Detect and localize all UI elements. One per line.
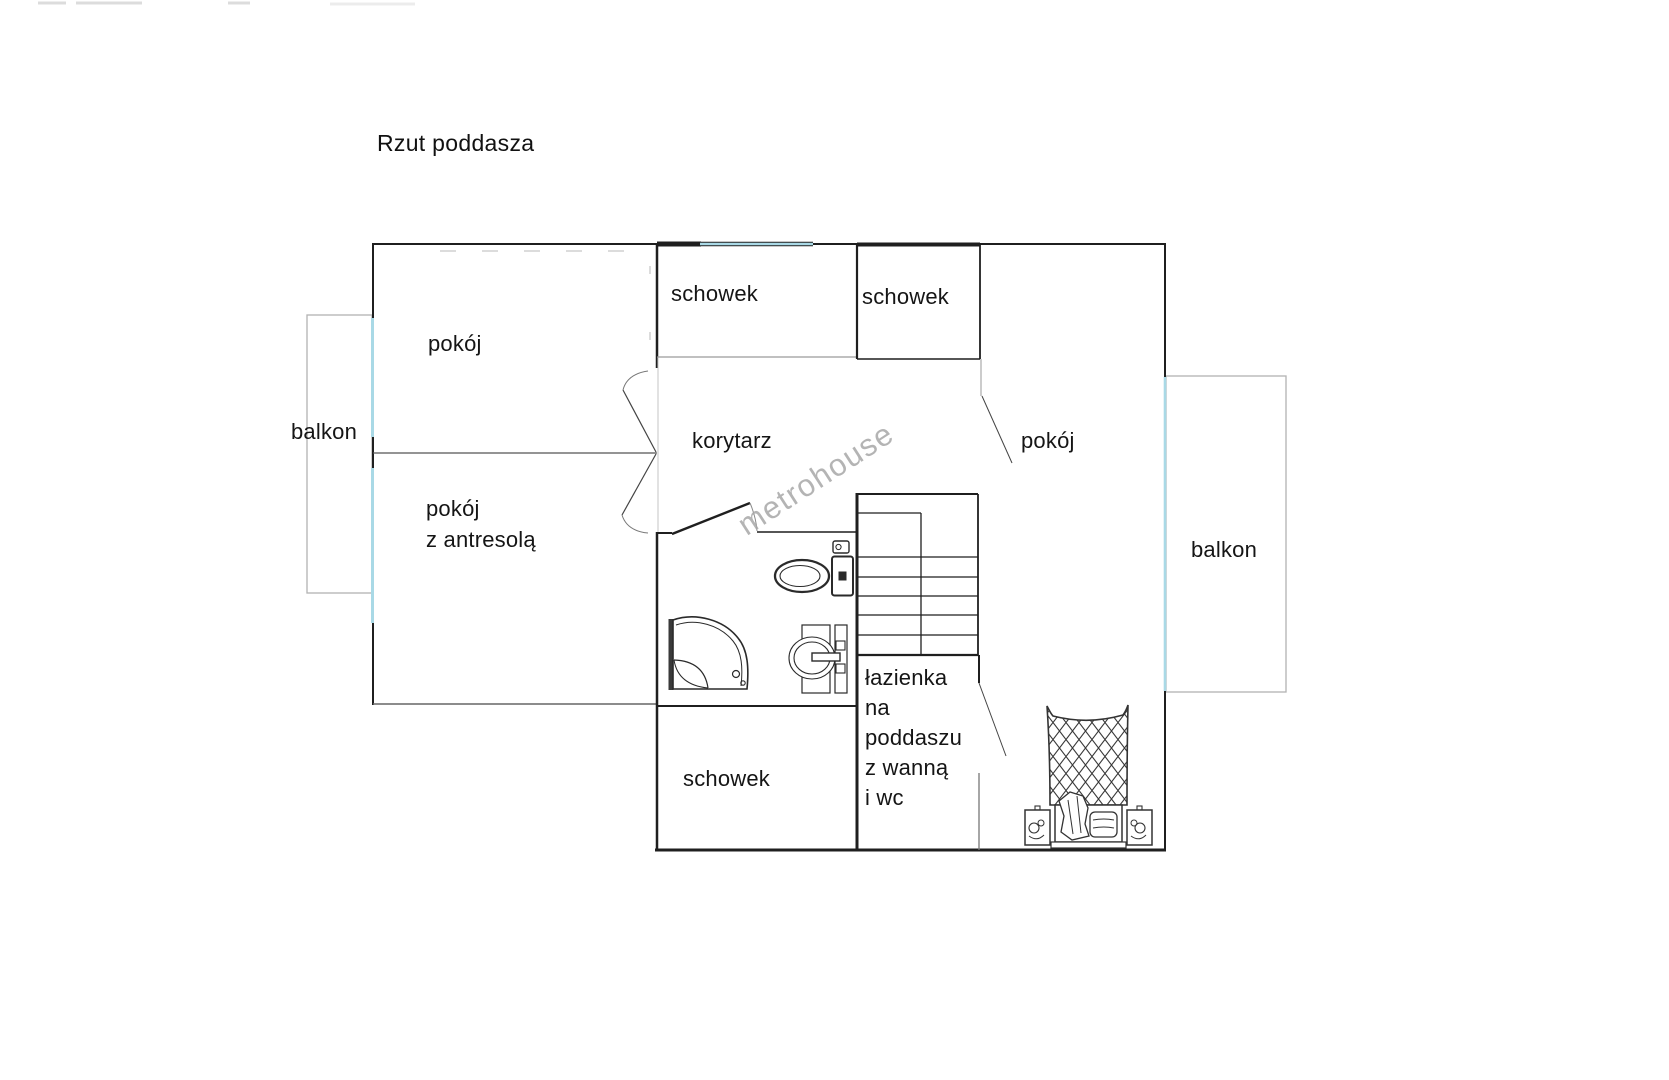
room-label-lazienka-line5: i wc	[865, 785, 904, 810]
sink-icon	[789, 625, 847, 693]
shower-icon	[669, 617, 748, 690]
plan-title: Rzut poddasza	[377, 130, 534, 157]
room-label-lazienka-line1: łazienka	[865, 665, 947, 690]
room-label-korytarz: korytarz	[692, 428, 772, 454]
door-swing-pokoj-left	[623, 371, 656, 452]
stairs-icon	[857, 494, 978, 655]
room-label-pokoj-z-antresola: pokójz antresolą	[426, 493, 536, 555]
balcony-right-outline	[1166, 376, 1286, 692]
room-label-lazienka-line2: na	[865, 695, 890, 720]
door-swing-bedroom-area	[979, 683, 1006, 756]
room-label-lazienka-line4: z wanną	[865, 755, 948, 780]
room-label-lazienka-line3: poddaszu	[865, 725, 962, 750]
nightstand-left-icon	[1025, 806, 1050, 845]
floor-plan-page: Rzut poddasza pokój balkon schowek schow…	[0, 0, 1669, 1080]
room-label-schowek-bottom: schowek	[683, 766, 770, 792]
room-label-balkon-right: balkon	[1191, 537, 1257, 563]
room-label-pokoj-right: pokój	[1021, 428, 1075, 454]
toilet-icon	[775, 541, 853, 596]
floor-plan-drawing	[0, 0, 1669, 1080]
room-label-schowek-top-left: schowek	[671, 281, 758, 307]
door-swing-pokoj-right	[982, 396, 1012, 463]
nightstand-right-icon	[1127, 806, 1152, 845]
room-label-lazienka: łazienkanapoddaszuz wannąi wc	[865, 663, 962, 813]
room-label-schowek-top-right: schowek	[862, 284, 949, 310]
room-label-pokoj-z-antresola-line2: z antresolą	[426, 527, 536, 552]
room-label-pokoj-z-antresola-line1: pokój	[426, 496, 480, 521]
room-label-pokoj-top-left: pokój	[428, 331, 482, 357]
door-swing-antresola	[622, 454, 656, 533]
balcony-left-outline	[307, 315, 372, 593]
double-bed-icon	[1047, 705, 1128, 848]
scan-smudges	[38, 3, 415, 4]
room-label-balkon-left: balkon	[291, 419, 357, 445]
